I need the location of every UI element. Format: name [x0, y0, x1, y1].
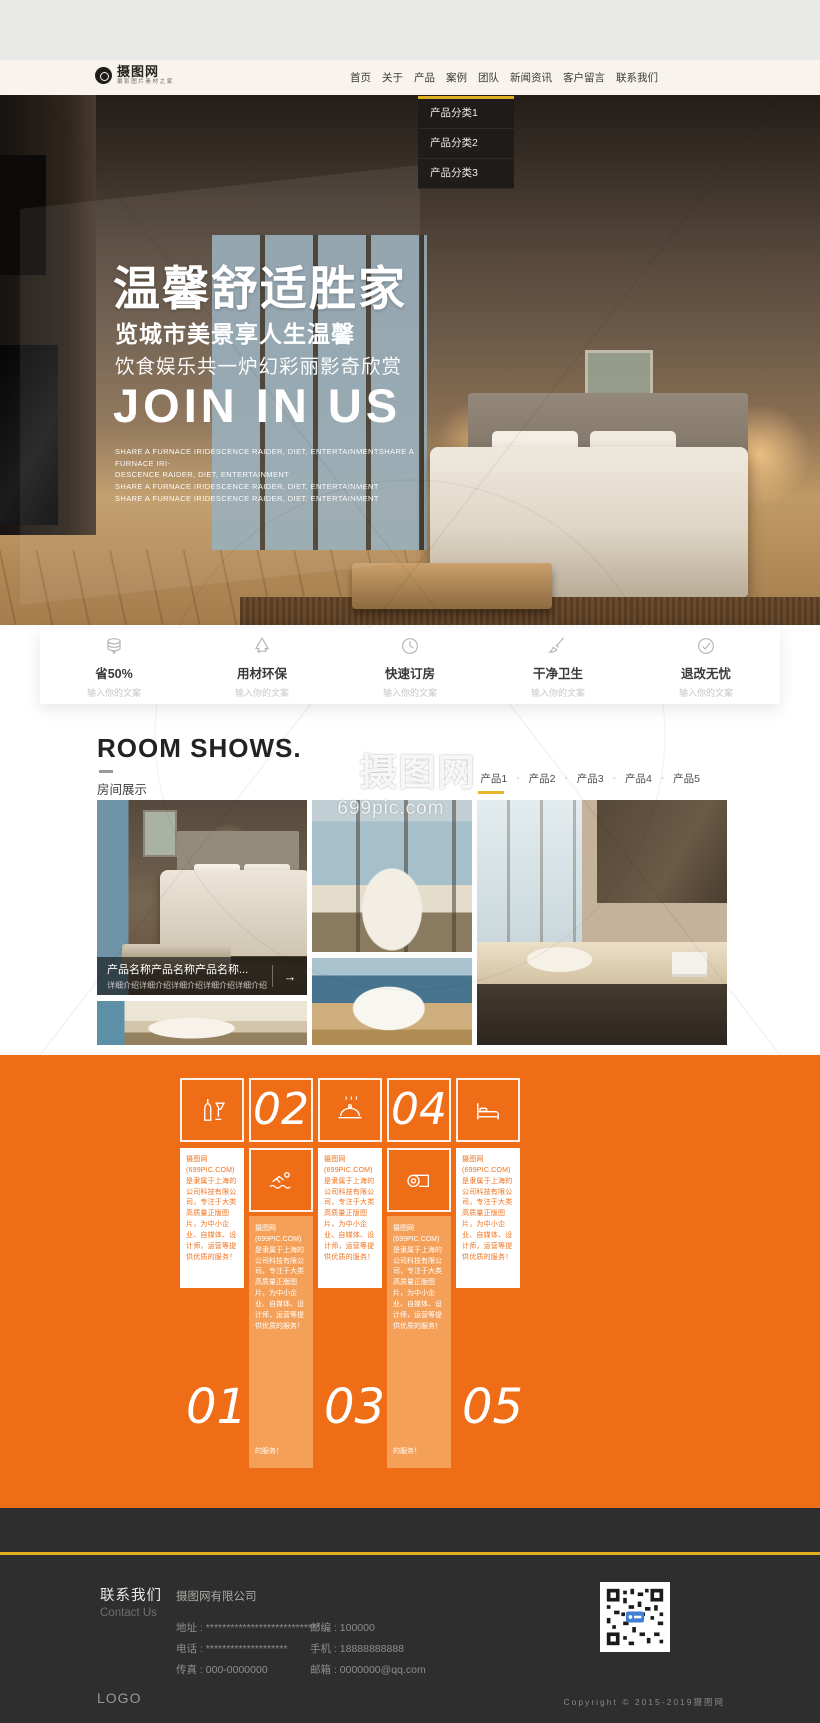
- nav-item-cases[interactable]: 案例: [446, 70, 467, 85]
- tab-product-1[interactable]: 产品1: [480, 771, 507, 786]
- product-tabs: 产品1 - 产品2 - 产品3 - 产品4 - 产品5: [480, 771, 700, 786]
- check-circle-icon: [693, 633, 719, 659]
- promo-card-5: 摄图网(699PIC.COM)是隶属于上海的公司科技有限公司，专注于大类高质量正…: [456, 1148, 520, 1288]
- promo-number-box-04: 04: [387, 1078, 451, 1142]
- gallery-photo-sink[interactable]: [97, 1001, 307, 1045]
- promo-blurb-text: 摄图网(699PIC.COM)是隶属于上海的公司科技有限公司，专注于大类高质量正…: [249, 1216, 313, 1332]
- feature-save50: 省50% 输入你的文案: [40, 628, 188, 704]
- logo-brand-text: 摄图网: [117, 65, 174, 78]
- feature-subtext: 输入你的文案: [531, 686, 585, 699]
- footer-value: 18888888888: [340, 1643, 404, 1655]
- footer-value: 100000: [340, 1622, 375, 1634]
- tab-separator: -: [661, 773, 664, 784]
- right-arrow-icon: →: [284, 969, 297, 984]
- nav-item-home[interactable]: 首页: [350, 70, 371, 85]
- feature-subtext: 输入你的文案: [235, 686, 289, 699]
- hero-bench: [352, 563, 552, 609]
- promo-blurb-text: 摄图网(699PIC.COM)是隶属于上海的公司科技有限公司，专注于大类高质量正…: [387, 1216, 451, 1332]
- footer-email-row: 邮箱 : 0000000@qq.com: [310, 1662, 426, 1677]
- footer-qr-code: [600, 1582, 670, 1652]
- promo-icon-box-pool: [249, 1148, 313, 1212]
- feature-title: 退改无忧: [681, 663, 731, 682]
- promo-number: 02: [253, 1088, 309, 1132]
- feature-clean: 干净卫生 输入你的文案: [484, 628, 632, 704]
- promo-blurb-text: 摄图网(699PIC.COM)是隶属于上海的公司科技有限公司，专注于大类高质量正…: [456, 1148, 520, 1270]
- promo-icon-box-roomservice: [318, 1078, 382, 1142]
- feature-subtext: 输入你的文案: [87, 686, 141, 699]
- qr-code-icon: [605, 1587, 665, 1647]
- gallery-photo-bedroom[interactable]: 产品名称产品名称产品名称... 详细介绍详细介绍详细介绍详细介绍详细介绍 →: [97, 800, 307, 995]
- footer-address-row: 地址 : ****************************: [176, 1620, 320, 1635]
- feature-fast-booking: 快速订房 输入你的文案: [336, 628, 484, 704]
- photo-cabinet: [477, 984, 727, 1045]
- logo-tagline: 摄影图片素材之家: [117, 80, 174, 86]
- products-dropdown-menu: 产品分类1 产品分类2 产品分类3: [418, 96, 514, 189]
- promo-card-4: 摄图网(699PIC.COM)是隶属于上海的公司科技有限公司，专注于大类高质量正…: [387, 1216, 451, 1468]
- nav-item-about[interactable]: 关于: [382, 70, 403, 85]
- promo-number-box-02: 02: [249, 1078, 313, 1142]
- hero-title: 温馨舒适胜家: [113, 250, 407, 319]
- footer-label: 手机 :: [310, 1643, 337, 1655]
- feature-eco: 用材环保 输入你的文案: [188, 628, 336, 704]
- footer-contact-heading-en: Contact Us: [100, 1607, 157, 1619]
- footer-contact-heading: 联系我们: [100, 1584, 162, 1605]
- section-title-dash: [99, 770, 113, 773]
- promo-icon-box-bed: [456, 1078, 520, 1142]
- promo-number-03: 03: [324, 1383, 385, 1431]
- feature-subtext: 输入你的文案: [679, 686, 733, 699]
- promo-icon-box-towel: [387, 1148, 451, 1212]
- clock-icon: [397, 633, 423, 659]
- footer-label: 传真 :: [176, 1664, 203, 1676]
- tab-product-3[interactable]: 产品3: [577, 771, 604, 786]
- feature-title: 快速订房: [385, 663, 435, 682]
- footer-value: 000-0000000: [206, 1664, 268, 1676]
- gallery-caption-bar: 产品名称产品名称产品名称... 详细介绍详细介绍详细介绍详细介绍详细介绍 →: [97, 957, 307, 995]
- nav-item-news[interactable]: 新闻资讯: [510, 70, 552, 85]
- footer-value: 0000000@qq.com: [340, 1664, 426, 1676]
- footer-phone-row: 电话 : ********************: [176, 1641, 288, 1656]
- cloche-icon: [333, 1093, 367, 1127]
- photo-towels: [672, 952, 707, 974]
- tab-product-4[interactable]: 产品4: [625, 771, 652, 786]
- promo-number-05: 05: [462, 1383, 523, 1431]
- site-logo[interactable]: 摄图网 摄影图片素材之家: [95, 65, 174, 86]
- dropdown-item-category3[interactable]: 产品分类3: [418, 159, 514, 189]
- tab-separator: -: [613, 773, 616, 784]
- photo-mirror: [597, 800, 727, 903]
- gallery-photo-bath-window[interactable]: [312, 800, 472, 952]
- tab-separator: -: [564, 773, 567, 784]
- hero-subtitle-1: 览城市美景享人生温馨: [115, 315, 355, 349]
- tab-product-2[interactable]: 产品2: [529, 771, 556, 786]
- nav-item-products[interactable]: 产品: [414, 70, 435, 85]
- section-title-room-shows: ROOM SHOWS.: [97, 733, 302, 764]
- gallery-caption-desc: 详细介绍详细介绍详细介绍详细介绍详细介绍: [107, 980, 262, 991]
- footer-label: 电话 :: [176, 1643, 203, 1655]
- site-header: 摄图网 摄影图片素材之家 首页 关于 产品 案例 团队 新闻资讯 客户留言 联系…: [0, 60, 820, 95]
- footer-logo-placeholder: LOGO: [97, 1690, 141, 1706]
- feature-strip: 省50% 输入你的文案 用材环保 输入你的文案 快速订房 输入你的文案: [40, 628, 780, 704]
- footer-label: 邮箱 :: [310, 1664, 337, 1676]
- feature-free-cancel: 退改无忧 输入你的文案: [632, 628, 780, 704]
- camera-aperture-icon: [306, 746, 352, 792]
- tab-product-5[interactable]: 产品5: [673, 771, 700, 786]
- feature-subtext: 输入你的文案: [383, 686, 437, 699]
- gallery-caption-arrow-button[interactable]: →: [272, 965, 307, 987]
- dropdown-item-category2[interactable]: 产品分类2: [418, 129, 514, 159]
- recycle-icon: [249, 633, 275, 659]
- footer-label: 地址 :: [176, 1622, 203, 1634]
- footer-mobile-row: 手机 : 18888888888: [310, 1641, 404, 1656]
- footer-value: ****************************: [206, 1622, 320, 1634]
- footer: 联系我们 Contact Us 摄图网有限公司 地址 : ***********…: [0, 1508, 820, 1723]
- swimmer-icon: [264, 1163, 298, 1197]
- photo-window: [477, 800, 582, 962]
- photo-bed: [160, 870, 307, 956]
- gallery-photo-bathtub[interactable]: [312, 958, 472, 1045]
- bed-icon: [471, 1093, 505, 1127]
- promo-number-01: 01: [186, 1383, 247, 1431]
- brush-icon: [545, 633, 571, 659]
- footer-label: 邮编 :: [310, 1622, 337, 1634]
- hero-description-lines: SHARE A FURNACE IRIDESCENCE RAIDER, DIET…: [115, 446, 445, 504]
- feature-title: 用材环保: [237, 663, 287, 682]
- promo-blurb-text: 摄图网(699PIC.COM)是隶属于上海的公司科技有限公司，专注于大类高质量正…: [318, 1148, 382, 1270]
- footer-zip-row: 邮编 : 100000: [310, 1620, 375, 1635]
- feature-title: 省50%: [95, 663, 133, 682]
- dropdown-item-category1[interactable]: 产品分类1: [418, 99, 514, 129]
- browser-top-strip: [0, 0, 820, 61]
- footer-copyright: Copyright © 2015-2019摄图网: [563, 1696, 725, 1708]
- hero-banner: 温馨舒适胜家 览城市美景享人生温馨 饮食娱乐共一炉幻彩丽影奇欣赏 JOIN IN…: [0, 95, 820, 625]
- footer-value: ********************: [206, 1643, 288, 1655]
- nav-item-contact[interactable]: 联系我们: [616, 70, 658, 85]
- promo-blurb-tail: 的服务！: [387, 1446, 451, 1468]
- watermark-brand: 摄图网: [360, 742, 477, 796]
- main-nav: 首页 关于 产品 案例 团队 新闻资讯 客户留言 联系我们: [350, 60, 658, 95]
- tab-separator: -: [516, 773, 519, 784]
- landing-page: 摄图网 摄影图片素材之家 首页 关于 产品 案例 团队 新闻资讯 客户留言 联系…: [0, 0, 820, 1723]
- photo-wall-art: [143, 810, 176, 857]
- promo-card-1: 摄图网(699PIC.COM)是隶属于上海的公司科技有限公司，专注于大类高质量正…: [180, 1148, 244, 1288]
- towel-icon: [402, 1163, 436, 1197]
- gallery-photo-vanity[interactable]: [477, 800, 727, 1045]
- coins-icon: [101, 633, 127, 659]
- logo-camera-icon: [95, 67, 112, 84]
- hero-subtitle-2: 饮食娱乐共一炉幻彩丽影奇欣赏: [115, 350, 402, 379]
- promo-icon-box-dining: [180, 1078, 244, 1142]
- footer-fax-row: 传真 : 000-0000000: [176, 1662, 268, 1677]
- promo-blurb-text: 摄图网(699PIC.COM)是隶属于上海的公司科技有限公司，专注于大类高质量正…: [180, 1148, 244, 1270]
- promo-card-2: 摄图网(699PIC.COM)是隶属于上海的公司科技有限公司，专注于大类高质量正…: [249, 1216, 313, 1468]
- feature-title: 干净卫生: [533, 663, 583, 682]
- wine-bottle-icon: [195, 1093, 229, 1127]
- footer-company-name: 摄图网有限公司: [176, 1588, 257, 1604]
- promo-card-3: 摄图网(699PIC.COM)是隶属于上海的公司科技有限公司，专注于大类高质量正…: [318, 1148, 382, 1288]
- promo-section: 02 04: [0, 1055, 820, 1508]
- nav-item-message[interactable]: 客户留言: [563, 70, 605, 85]
- photo-sink-basin: [527, 947, 592, 972]
- section-subtitle: 房间展示: [97, 779, 147, 798]
- gallery-caption-title: 产品名称产品名称产品名称...: [107, 961, 262, 977]
- nav-item-team[interactable]: 团队: [478, 70, 499, 85]
- promo-blurb-tail: 的服务！: [249, 1446, 313, 1468]
- hero-english-heading: JOIN IN US: [113, 378, 401, 433]
- footer-accent-line: [0, 1552, 820, 1555]
- promo-number: 04: [391, 1088, 447, 1132]
